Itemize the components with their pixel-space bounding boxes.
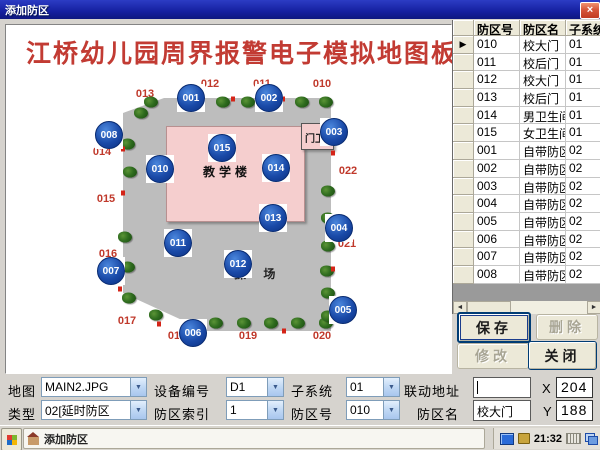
cell-zone-no: 015 [474,124,520,142]
table-row[interactable]: 011校后门01 [453,54,600,72]
perimeter-label: 010 [313,78,331,90]
zone-name-input[interactable]: 校大门 [473,400,531,421]
sensor-ball: 006 [179,319,207,347]
subsystem-field-label: 子系统 [291,381,333,400]
house-icon [28,437,39,445]
cell-zone-name: 自带防区 [520,160,566,178]
cell-subsystem: 02 [566,248,600,266]
cell-zone-no: 014 [474,107,520,125]
device-combo-value: D1 [227,380,267,394]
sensor-marker-001[interactable]: 001 [177,84,205,112]
red-tick-mark [157,322,161,327]
cell-zone-no: 002 [474,160,520,178]
row-selector[interactable] [453,248,474,266]
cell-zone-name: 校后门 [520,89,566,107]
cell-subsystem: 02 [566,231,600,249]
sensor-ball: 001 [177,84,205,112]
sensor-marker-011[interactable]: 011 [164,229,192,257]
sensor-marker-014[interactable]: 014 [262,154,290,182]
table-row[interactable]: 014男卫生间01 [453,107,600,125]
row-selector[interactable] [453,142,474,160]
tree-icon [241,97,255,108]
sensor-marker-007[interactable]: 007 [97,257,125,285]
cell-zone-name: 自带防区 [520,213,566,231]
sensor-ball: 010 [146,155,174,183]
cell-zone-name: 自带防区 [520,142,566,160]
chevron-down-icon[interactable]: ▼ [383,401,399,419]
scroll-right-icon[interactable]: ► [587,301,600,314]
red-tick-mark [231,97,235,102]
row-selector[interactable] [453,213,474,231]
tree-icon [295,97,309,108]
cell-subsystem: 02 [566,213,600,231]
keyboard-layout-icon[interactable] [566,433,581,444]
chevron-down-icon[interactable]: ▼ [383,378,399,396]
cell-zone-no: 008 [474,266,520,284]
cell-subsystem: 02 [566,160,600,178]
table-empty-area [453,284,600,301]
perimeter-label: 020 [313,330,331,342]
zone-table-header: 防区号防区名子系统 [453,20,600,36]
chevron-down-icon[interactable]: ▼ [267,401,283,419]
table-row[interactable]: 008自带防区02 [453,266,600,284]
zone-table-body: ▶010校大门01011校后门01012校大门01013校后门01014男卫生间… [453,36,600,301]
zone-no-field-label: 防区号 [291,404,333,423]
tree-icon [321,241,335,252]
zone-no-combo-value: 010 [347,403,383,417]
table-row[interactable]: 003自带防区02 [453,178,600,196]
sensor-marker-008[interactable]: 008 [95,121,123,149]
column-header[interactable]: 子系统 [566,20,600,36]
row-selector[interactable] [453,178,474,196]
cell-subsystem: 01 [566,36,600,54]
linkage-input[interactable] [473,377,531,398]
tree-icon [123,167,137,178]
cell-zone-no: 005 [474,213,520,231]
chevron-down-icon[interactable]: ▼ [130,401,146,419]
windows-logo-icon [7,435,17,445]
cell-zone-name: 校大门 [520,36,566,54]
tree-icon [122,293,136,304]
row-selector[interactable] [453,160,474,178]
sensor-ball: 008 [95,121,123,149]
sensor-marker-010[interactable]: 010 [146,155,174,183]
subsystem-combo-value: 01 [347,380,383,394]
map-combo[interactable]: MAIN2.JPG ▼ [41,377,147,397]
taskbar-window-button[interactable]: 添加防区 [23,428,485,449]
perimeter-label: 022 [339,165,357,177]
cell-subsystem: 01 [566,107,600,125]
tree-icon [319,97,333,108]
sensor-marker-013[interactable]: 013 [259,204,287,232]
zone-table: 防区号防区名子系统 ▶010校大门01011校后门01012校大门01013校后… [452,20,600,314]
cell-zone-name: 自带防区 [520,178,566,196]
y-coord-box[interactable]: 188 [556,400,593,421]
screen: 添加防区 × 江桥幼儿园周界报警电子模拟地图板 教学楼 门卫 操 场 01301… [0,0,600,450]
window-title: 添加防区 [0,2,49,18]
device-field-label: 设备编号 [154,381,210,400]
cell-zone-no: 012 [474,71,520,89]
cell-zone-no: 007 [474,248,520,266]
table-row[interactable]: 006自带防区02 [453,231,600,249]
sensor-marker-002[interactable]: 002 [255,84,283,112]
text-caret [477,381,478,394]
red-tick-mark [282,329,286,334]
tray-device-icon[interactable] [518,433,530,444]
table-row[interactable]: 002自带防区02 [453,160,600,178]
cell-subsystem: 02 [566,178,600,196]
red-tick-mark [121,191,125,196]
sensor-ball: 015 [208,134,236,162]
red-tick-mark [331,151,335,156]
sensor-marker-006[interactable]: 006 [179,319,207,347]
tree-icon [237,318,251,329]
sensor-ball: 002 [255,84,283,112]
zone-index-combo-value: 1 [227,403,267,417]
perimeter-label: 019 [239,330,257,342]
save-button[interactable]: 保存 [457,312,531,343]
table-row[interactable]: 004自带防区02 [453,195,600,213]
zone-index-field-label: 防区索引 [154,404,210,423]
cell-zone-name: 女卫生间 [520,124,566,142]
tree-icon [291,318,305,329]
row-selector[interactable] [453,89,474,107]
modify-button: 修改 [457,343,529,369]
sensor-marker-003[interactable]: 003 [320,118,348,146]
tree-icon [264,318,278,329]
table-row[interactable]: ▶010校大门01 [453,36,600,54]
perimeter-label: 017 [118,315,136,327]
table-row[interactable]: 007自带防区02 [453,248,600,266]
red-tick-mark [118,287,122,292]
tree-icon [209,318,223,329]
sensor-marker-005[interactable]: 005 [329,296,357,324]
cell-subsystem: 01 [566,71,600,89]
cell-zone-name: 校后门 [520,54,566,72]
cell-zone-no: 004 [474,195,520,213]
tree-icon [216,97,230,108]
taskbar-window-label: 添加防区 [44,431,88,447]
row-selector[interactable]: ▶ [453,36,474,54]
map-combo-value: MAIN2.JPG [42,380,130,394]
system-tray: 21:32 [493,428,600,449]
table-row[interactable]: 005自带防区02 [453,213,600,231]
x-coord-box[interactable]: 204 [556,377,593,398]
column-header[interactable]: 防区号 [474,20,520,36]
start-button[interactable] [1,428,22,450]
teaching-building-label: 教学楼 [203,163,251,180]
cell-zone-no: 001 [474,142,520,160]
cell-subsystem: 02 [566,266,600,284]
sensor-marker-004[interactable]: 004 [325,214,353,242]
sensor-ball: 011 [164,229,192,257]
sensor-ball: 014 [262,154,290,182]
close-button[interactable]: 关闭 [528,341,597,370]
chevron-down-icon[interactable]: ▼ [130,378,146,396]
perimeter-label: 015 [97,193,115,205]
tree-icon [144,97,158,108]
row-header-corner [453,20,474,36]
type-field-label: 类型 [8,404,36,423]
close-icon[interactable]: × [580,2,600,19]
device-combo[interactable]: D1 ▼ [226,377,284,397]
x-field-label: X [542,381,552,396]
cell-zone-name: 自带防区 [520,248,566,266]
cell-zone-no: 006 [474,231,520,249]
sensor-ball: 005 [329,296,357,324]
subsystem-combo[interactable]: 01 ▼ [346,377,400,397]
cascade-windows-icon[interactable] [585,433,597,444]
map-title: 江桥幼儿园周界报警电子模拟地图板 [26,34,458,70]
row-selector[interactable] [453,54,474,72]
cell-zone-name: 自带防区 [520,195,566,213]
row-selector[interactable] [453,231,474,249]
cell-zone-no: 003 [474,178,520,196]
sensor-ball: 003 [320,118,348,146]
tree-icon [134,108,148,119]
zone-index-combo[interactable]: 1 ▼ [226,400,284,420]
cell-zone-no: 013 [474,89,520,107]
row-selector[interactable] [453,266,474,284]
cell-zone-no: 010 [474,36,520,54]
delete-button: 删除 [536,314,598,340]
cell-subsystem: 01 [566,89,600,107]
table-row[interactable]: 001自带防区02 [453,142,600,160]
sensor-marker-012[interactable]: 012 [224,250,252,278]
table-row[interactable]: 012校大门01 [453,71,600,89]
red-tick-mark [331,267,335,272]
cell-subsystem: 01 [566,54,600,72]
sensor-ball: 007 [97,257,125,285]
clock: 21:32 [534,433,562,445]
row-selector[interactable] [453,124,474,142]
cell-zone-name: 校大门 [520,71,566,89]
type-combo[interactable]: 02[延时防区 ▼ [41,400,147,420]
cell-zone-name: 自带防区 [520,266,566,284]
window-titlebar: 添加防区 [0,0,600,19]
map-field-label: 地图 [8,381,36,400]
cell-subsystem: 02 [566,195,600,213]
type-combo-value: 02[延时防区 [42,402,130,419]
row-selector[interactable] [453,107,474,125]
cell-zone-name: 男卫生间 [520,107,566,125]
tree-icon [149,310,163,321]
zone-no-combo[interactable]: 010 ▼ [346,400,400,420]
cell-zone-name: 自带防区 [520,231,566,249]
tree-icon [118,232,132,243]
cell-zone-no: 011 [474,54,520,72]
tray-network-icon[interactable] [500,433,514,445]
tree-icon [321,186,335,197]
taskbar: 添加防区 21:32 [0,425,600,450]
sensor-marker-015[interactable]: 015 [208,134,236,162]
row-selector[interactable] [453,71,474,89]
zone-name-field-label: 防区名 [417,404,459,423]
sensor-ball: 004 [325,214,353,242]
cell-subsystem: 02 [566,142,600,160]
linkage-field-label: 联动地址 [404,381,460,400]
sensor-ball: 012 [224,250,252,278]
table-row[interactable]: 015女卫生间01 [453,124,600,142]
sensor-ball: 013 [259,204,287,232]
chevron-down-icon[interactable]: ▼ [267,378,283,396]
row-selector[interactable] [453,195,474,213]
cell-subsystem: 01 [566,124,600,142]
map-panel: 江桥幼儿园周界报警电子模拟地图板 教学楼 门卫 操 场 013012011010… [5,24,452,374]
y-field-label: Y [543,404,553,419]
column-header[interactable]: 防区名 [520,20,566,36]
table-row[interactable]: 013校后门01 [453,89,600,107]
